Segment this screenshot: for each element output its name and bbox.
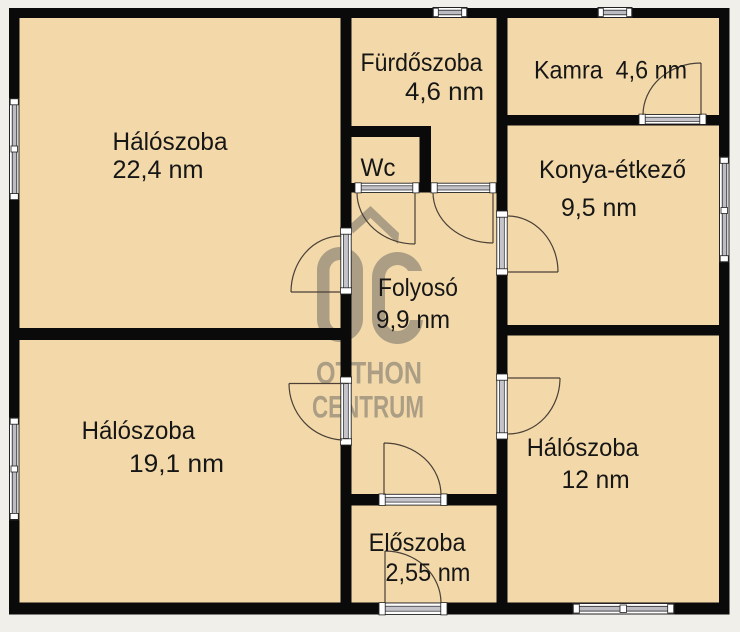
svg-text:9,5 nm: 9,5 nm bbox=[561, 194, 637, 222]
svg-text:22,4 nm: 22,4 nm bbox=[113, 156, 204, 184]
svg-text:Konya-étkező: Konya-étkező bbox=[539, 156, 686, 184]
svg-text:OTTHON: OTTHON bbox=[316, 355, 422, 391]
svg-text:Hálószoba: Hálószoba bbox=[113, 128, 228, 156]
svg-text:Wc: Wc bbox=[361, 154, 396, 182]
svg-text:19,1 nm: 19,1 nm bbox=[129, 450, 224, 478]
svg-text:Kamra 4,6 nm: Kamra 4,6 nm bbox=[534, 57, 687, 85]
svg-text:Előszoba: Előszoba bbox=[369, 529, 466, 557]
svg-text:Hálószoba: Hálószoba bbox=[527, 434, 639, 462]
svg-text:Folyosó: Folyosó bbox=[378, 274, 458, 302]
svg-text:4,6 nm: 4,6 nm bbox=[405, 78, 484, 106]
svg-text:2,55 nm: 2,55 nm bbox=[385, 559, 470, 587]
svg-text:12 nm: 12 nm bbox=[562, 466, 630, 494]
svg-text:CENTRUM: CENTRUM bbox=[312, 389, 424, 425]
svg-text:Fürdőszoba: Fürdőszoba bbox=[361, 49, 483, 77]
svg-text:9,9 nm: 9,9 nm bbox=[376, 306, 450, 334]
svg-text:Hálószoba: Hálószoba bbox=[82, 417, 196, 445]
